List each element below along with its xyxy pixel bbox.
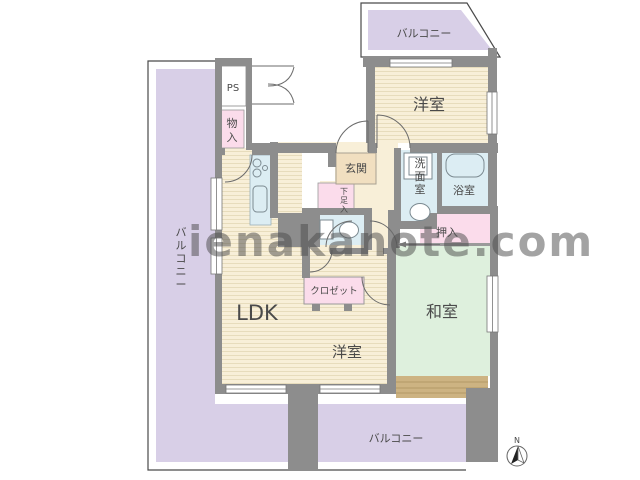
svg-text:物: 物 — [227, 116, 238, 130]
label-getabako: 下 足 入 — [340, 187, 348, 214]
svg-text:足: 足 — [340, 196, 348, 205]
label-bedroom-bottom: 洋室 — [332, 343, 362, 361]
porch-notch — [302, 153, 320, 210]
label-bedroom-top: 洋室 — [413, 95, 445, 114]
svg-text:ニ: ニ — [176, 265, 187, 278]
svg-text:入: 入 — [227, 131, 238, 144]
floor-plan-canvas: ienakanote.com バルコニー バ ル コ ニ ー バルコニー 洋室 … — [0, 0, 640, 480]
room-bedroom-bottom — [302, 248, 394, 384]
compass-label: N — [514, 436, 520, 445]
label-genkan: 玄関 — [345, 161, 367, 175]
compass-icon — [507, 446, 527, 466]
svg-text:バ: バ — [176, 226, 187, 239]
floor-plan: ienakanote.com バルコニー バ ル コ ニ ー バルコニー 洋室 … — [0, 0, 640, 480]
label-washitsu: 和室 — [426, 302, 458, 321]
label-ldk: LDK — [236, 301, 279, 325]
label-yokushitsu: 浴室 — [453, 183, 475, 197]
ps-doors — [252, 66, 294, 104]
svg-text:面: 面 — [415, 170, 426, 183]
room-yokushitsu — [442, 150, 488, 206]
label-balcony-top: バルコニー — [397, 27, 452, 40]
label-senmenshitsu: 洗 面 室 — [415, 157, 426, 196]
svg-text:コ: コ — [176, 252, 187, 265]
svg-text:入: 入 — [340, 205, 348, 214]
label-closet: クロゼット — [310, 285, 358, 297]
label-ps: PS — [227, 83, 239, 94]
label-balcony-left: バ ル コ ニ ー — [176, 226, 187, 291]
label-balcony-bottom: バルコニー — [369, 432, 424, 445]
watermark: ienakanote.com — [188, 217, 594, 266]
svg-text:ル: ル — [176, 239, 187, 252]
label-oshiire: 押入 — [436, 225, 458, 239]
svg-text:下: 下 — [340, 187, 348, 196]
svg-text:室: 室 — [415, 182, 426, 196]
svg-text:ー: ー — [176, 278, 187, 291]
svg-text:洗: 洗 — [415, 157, 426, 170]
